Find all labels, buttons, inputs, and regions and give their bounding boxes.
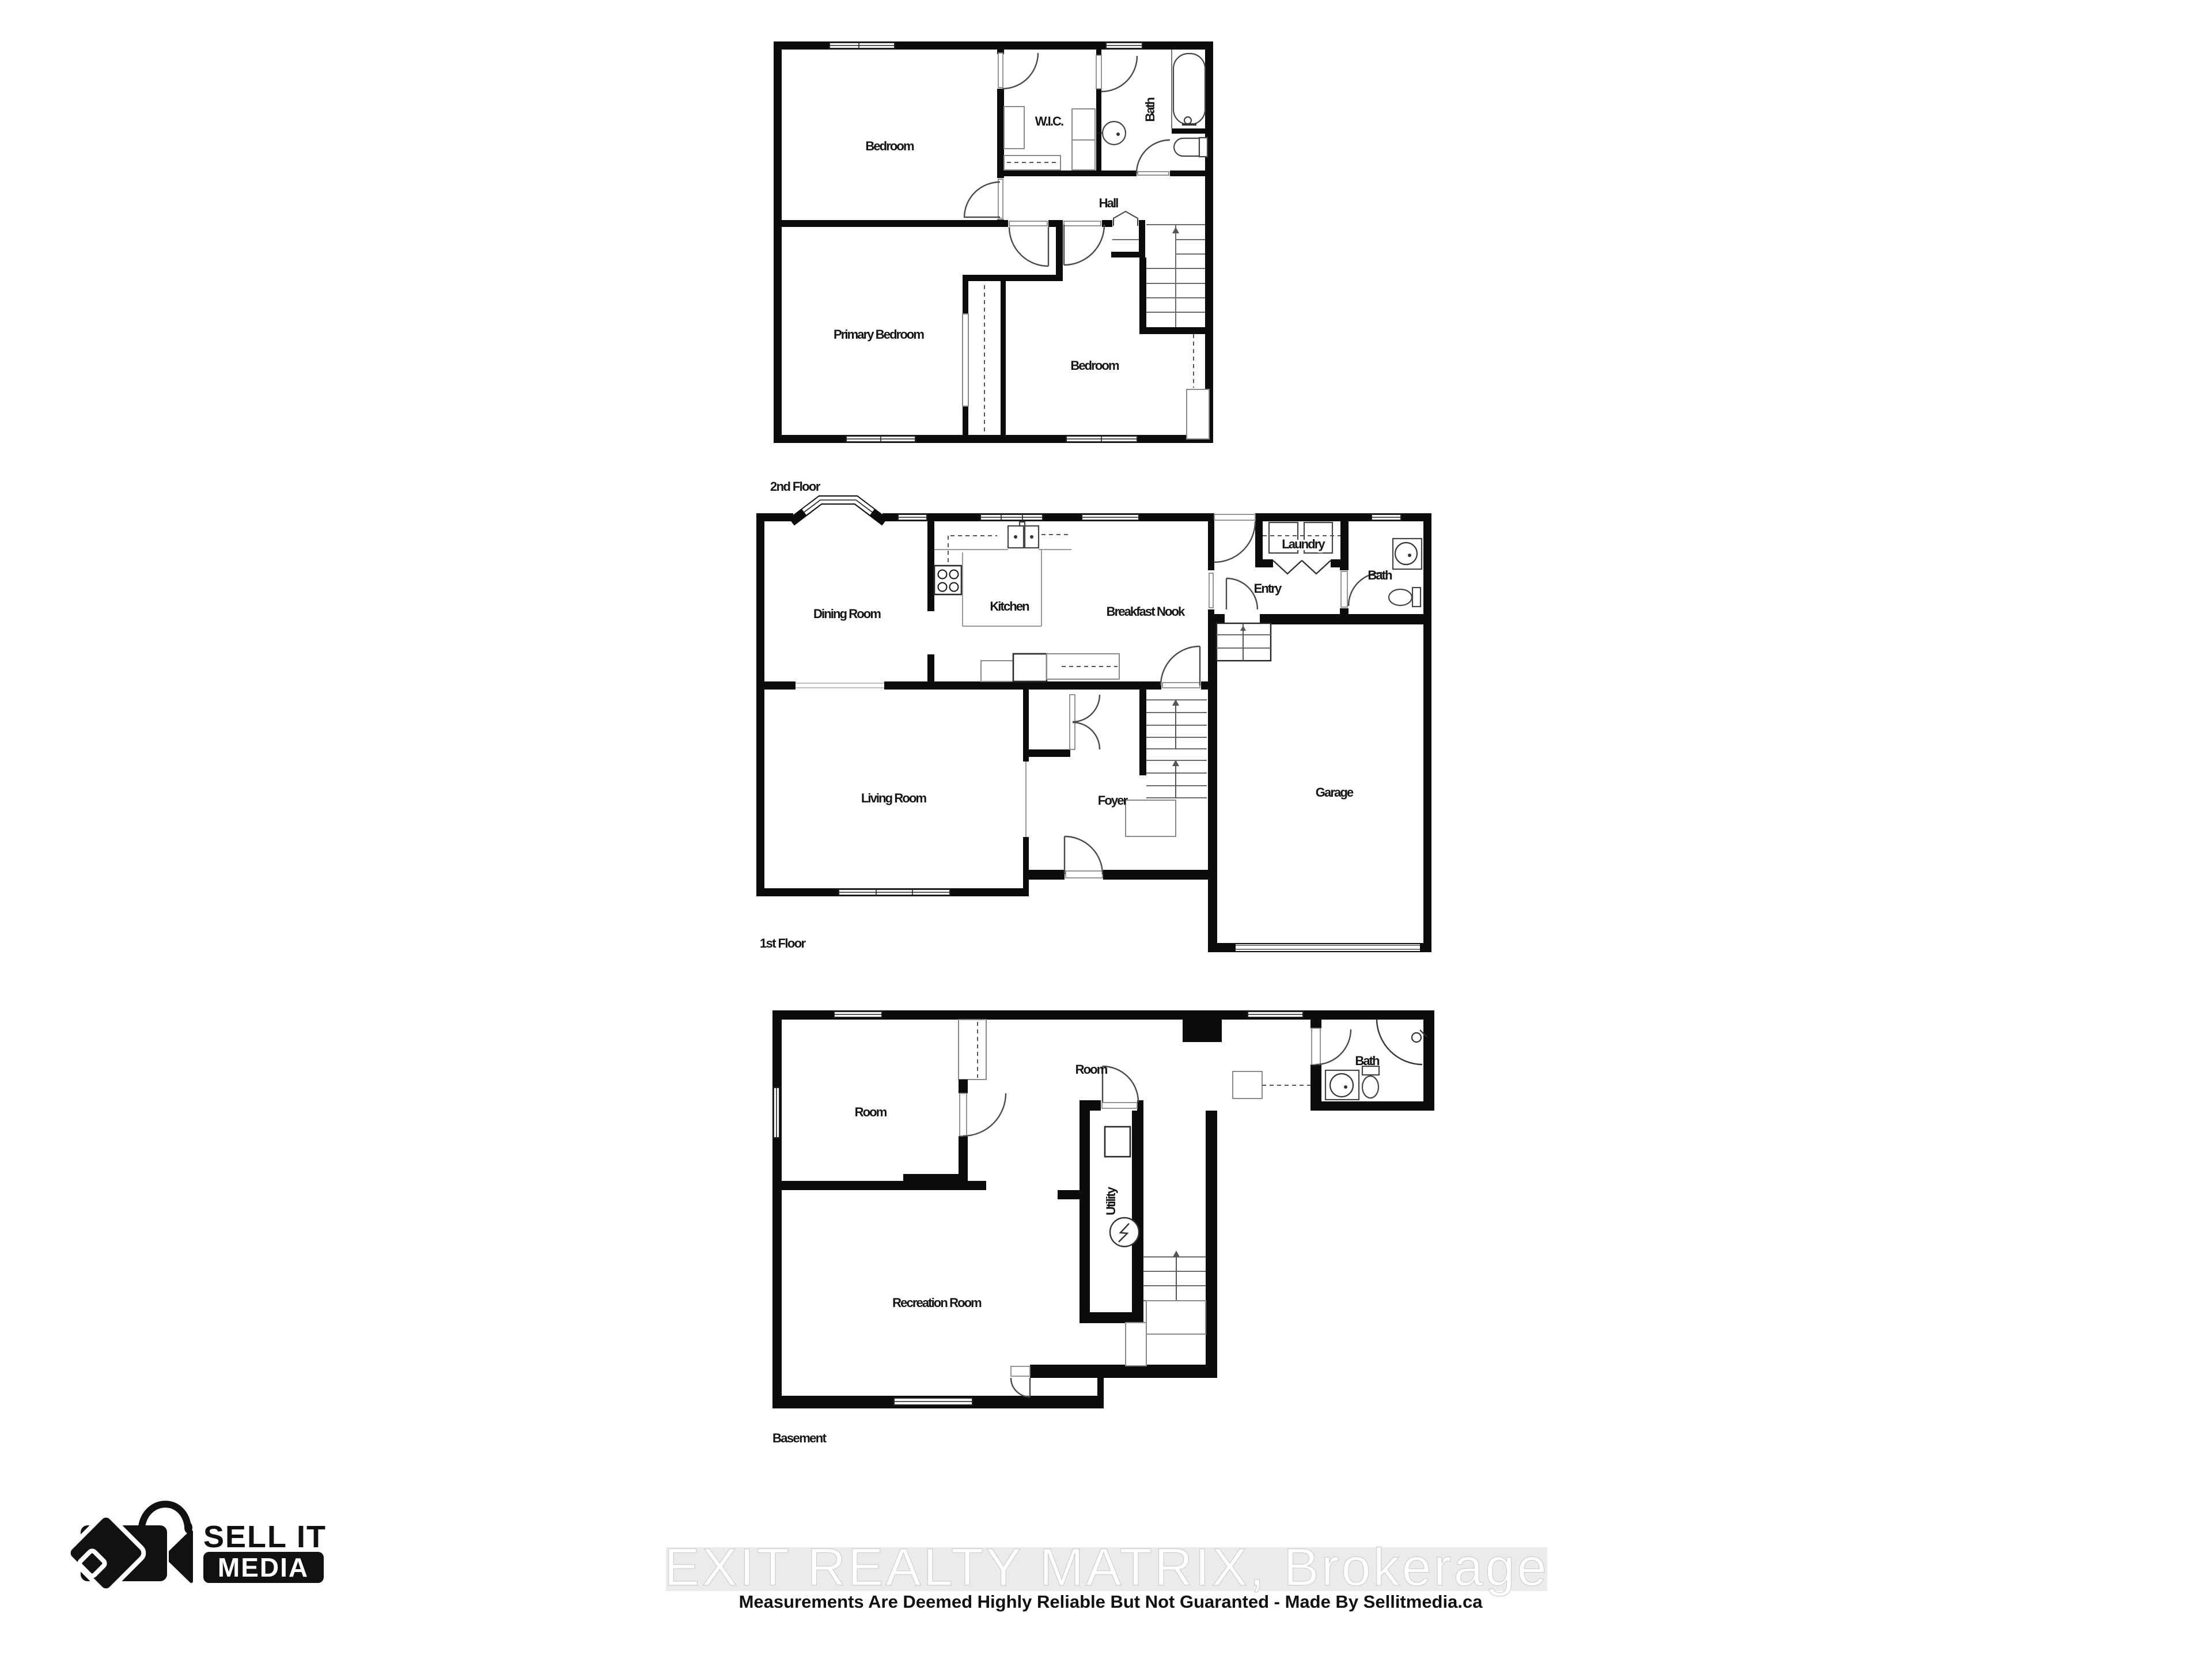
svg-text:Measurements Are Deemed Highly: Measurements Are Deemed Highly Reliable … bbox=[739, 1592, 1483, 1612]
svg-text:Bedroom: Bedroom bbox=[1070, 358, 1119, 373]
svg-text:Kitchen: Kitchen bbox=[990, 599, 1029, 613]
svg-text:SELL IT: SELL IT bbox=[203, 1520, 327, 1554]
svg-text:Room: Room bbox=[1075, 1062, 1108, 1077]
svg-text:Laundry: Laundry bbox=[1282, 537, 1325, 551]
svg-text:Bath: Bath bbox=[1368, 568, 1392, 582]
svg-text:EXIT REALTY MATRIX, Brokerage: EXIT REALTY MATRIX, Brokerage bbox=[664, 1538, 1549, 1597]
svg-text:2nd Floor: 2nd Floor bbox=[770, 479, 821, 494]
svg-text:Bath: Bath bbox=[1355, 1054, 1380, 1068]
svg-text:Entry: Entry bbox=[1254, 581, 1282, 596]
svg-text:W.I.C.: W.I.C. bbox=[1035, 114, 1063, 128]
svg-text:Breakfast Nook: Breakfast Nook bbox=[1107, 604, 1185, 619]
svg-text:Living Room: Living Room bbox=[861, 791, 927, 805]
svg-text:Dining Room: Dining Room bbox=[813, 607, 881, 621]
svg-text:Bath: Bath bbox=[1143, 97, 1157, 122]
svg-text:Foyer: Foyer bbox=[1098, 793, 1128, 808]
svg-text:Garage: Garage bbox=[1316, 785, 1354, 800]
svg-text:Utility: Utility bbox=[1104, 1186, 1118, 1215]
svg-text:Recreation Room: Recreation Room bbox=[892, 1296, 982, 1310]
svg-text:Hall: Hall bbox=[1099, 196, 1119, 210]
svg-text:Basement: Basement bbox=[772, 1431, 827, 1445]
svg-text:Bedroom: Bedroom bbox=[865, 139, 914, 153]
svg-text:1st Floor: 1st Floor bbox=[760, 936, 806, 950]
svg-text:Primary Bedroom: Primary Bedroom bbox=[834, 327, 924, 342]
svg-text:MEDIA: MEDIA bbox=[218, 1552, 309, 1582]
svg-text:Room: Room bbox=[855, 1105, 887, 1119]
